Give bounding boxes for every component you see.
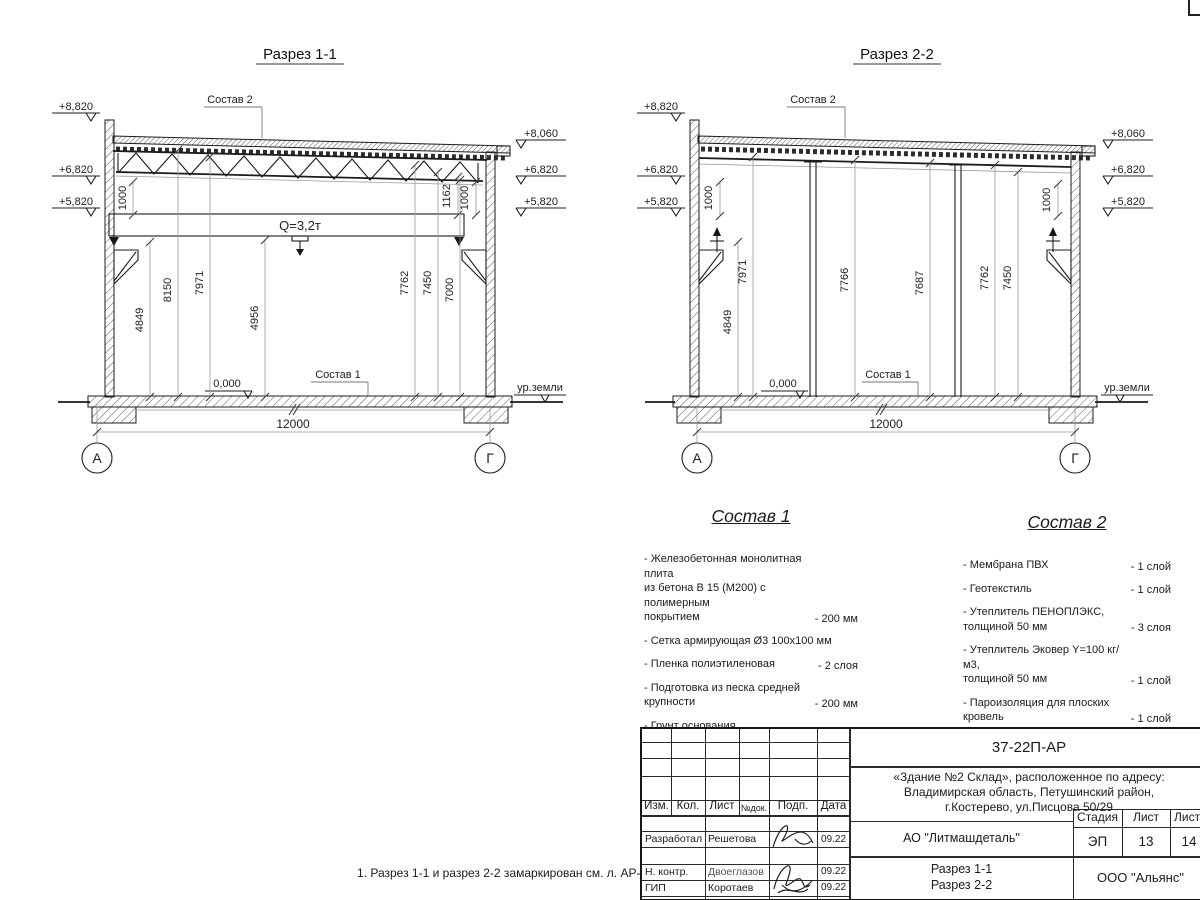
- list-item: - Подготовка из песка средней крупности …: [644, 681, 858, 710]
- signature-row-date: 09.22: [817, 866, 850, 877]
- elevation-label: +8,820: [59, 101, 93, 113]
- design-organization: ООО "Альянс": [1073, 856, 1200, 899]
- title-block: 37-22П-АР «Здание №2 Склад», расположенн…: [640, 727, 1200, 900]
- sheet-content-line2: Разрез 2-2: [850, 878, 1073, 893]
- zero-level-label: 0,000: [213, 378, 241, 390]
- signature-row-role: Разработал: [645, 833, 705, 845]
- sheet-content-line1: Разрез 1-1: [850, 862, 1073, 877]
- section-2-2: Разрез 2-2: [637, 46, 1153, 473]
- wall-left: [105, 120, 114, 397]
- wall-right: [1071, 152, 1080, 397]
- svg-text:7450: 7450: [422, 271, 434, 295]
- column-header-podp: Подп.: [769, 800, 817, 815]
- anchor-bolt-right: [1046, 227, 1060, 252]
- elevation-label: +5,820: [1111, 196, 1145, 208]
- section-1-title: Разрез 1-1: [263, 46, 337, 63]
- elevation-marks-left: +8,820 +6,820 +5,820: [637, 101, 685, 216]
- svg-text:8150: 8150: [162, 278, 174, 302]
- stage-header: Стадия: [1073, 810, 1122, 827]
- svg-text:4849: 4849: [134, 308, 146, 332]
- sostav-1-title: Состав 1: [644, 506, 858, 527]
- elevation-marks-right: +8,060 +6,820 +5,820: [516, 128, 566, 216]
- foundation-left: [677, 407, 721, 423]
- corbel-left: [114, 250, 138, 284]
- wall-right: [486, 152, 495, 397]
- dim-1000-left: 1000: [117, 178, 137, 219]
- corbel-left: [699, 250, 723, 284]
- span-dimension: 12000: [693, 405, 1079, 442]
- elevation-label: +6,820: [524, 164, 558, 176]
- list-item: - Геотекстиль - 1 слой: [963, 582, 1171, 597]
- stage-value: ЭП: [1073, 827, 1122, 856]
- svg-text:7762: 7762: [979, 266, 991, 290]
- svg-text:4956: 4956: [249, 306, 261, 330]
- elevation-label: +8,060: [524, 128, 558, 140]
- axis-letter: А: [92, 450, 102, 466]
- floor-slab: [88, 396, 512, 407]
- svg-text:7687: 7687: [914, 271, 926, 295]
- dim-1000-left: 1000: [703, 178, 724, 220]
- sostav-2-callout: Состав 2: [790, 94, 836, 106]
- project-address-line2: Владимирская область, Петушинский район,: [850, 785, 1200, 800]
- svg-text:12000: 12000: [869, 417, 903, 431]
- svg-text:7762: 7762: [399, 271, 411, 295]
- elevation-label: +5,820: [524, 196, 558, 208]
- list-item: - Пленка полиэтиленовая - 2 слоя: [644, 657, 858, 672]
- list-item: - Утеплитель Эковер Y=100 кг/м3, толщино…: [963, 643, 1171, 687]
- elevation-label: +5,820: [644, 196, 678, 208]
- signature-scribble: [770, 819, 816, 855]
- list-item: - Утеплитель ПЕНОПЛЭКС, толщиной 50 мм -…: [963, 605, 1171, 634]
- ground-level-label: ур.земли: [1104, 382, 1150, 394]
- crane-capacity-label: Q=3,2т: [279, 218, 321, 233]
- foundation-left: [92, 407, 136, 423]
- svg-text:1000: 1000: [459, 186, 471, 210]
- elevation-label: +6,820: [1111, 164, 1145, 176]
- sostav-2-callout: Состав 2: [207, 94, 253, 106]
- svg-text:7971: 7971: [194, 271, 206, 295]
- document-number: 37-22П-АР: [850, 733, 1200, 763]
- axis-letter: Г: [486, 450, 494, 466]
- wall-left: [690, 120, 699, 397]
- sheet-value: 13: [1122, 827, 1170, 856]
- elevation-label: +6,820: [644, 164, 678, 176]
- elevation-marks-right: +8,060 +6,820 +5,820: [1103, 128, 1153, 216]
- drawing-note: 1. Разрез 1-1 и разрез 2-2 замаркирован …: [357, 866, 657, 880]
- svg-text:1000: 1000: [703, 186, 715, 210]
- interior-posts: [804, 162, 967, 397]
- sheet-header: Лист: [1122, 810, 1170, 827]
- column-header-list: Лист: [705, 800, 739, 815]
- svg-text:1000: 1000: [1041, 188, 1053, 212]
- list-item: - Железобетонная монолитная плита из бет…: [644, 552, 858, 625]
- column-header-data: Дата: [817, 800, 850, 815]
- svg-text:12000: 12000: [276, 417, 310, 431]
- list-item: - Сетка армирующая Ø3 100х100 мм: [644, 634, 858, 649]
- svg-text:7766: 7766: [839, 268, 851, 292]
- zero-level-label: 0,000: [769, 378, 797, 390]
- vertical-dimensions: 4849 7971 7766 7687 7762 7450: [722, 153, 1022, 401]
- svg-text:7450: 7450: [1002, 266, 1014, 290]
- svg-text:1000: 1000: [117, 186, 129, 210]
- sostav-2-title: Состав 2: [963, 512, 1171, 533]
- sheets-value: 14: [1170, 827, 1200, 856]
- frame-corner: [1188, 0, 1200, 16]
- elevation-label: +5,820: [59, 196, 93, 208]
- sostav-1-callout: Состав 1: [315, 369, 361, 381]
- svg-text:7000: 7000: [444, 278, 456, 302]
- project-address-line1: «Здание №2 Склад», расположенное по адре…: [850, 770, 1200, 785]
- signature-row-name: Коротаев: [708, 882, 768, 894]
- sheets-header: Листов: [1174, 810, 1200, 827]
- sostav-1-block: Состав 1 - Железобетонная монолитная пли…: [644, 506, 858, 742]
- foundation-right: [464, 407, 508, 423]
- span-dimension: 12000: [93, 405, 494, 442]
- signature-row-name: Двоеглазов: [708, 866, 768, 878]
- dim-1000-right: 1000: [1041, 180, 1062, 220]
- signature-row-date: 09.22: [817, 882, 850, 893]
- ground-level-label: ур.земли: [517, 382, 563, 394]
- drawing-sheet: Разрез 1-1 Q=3,2т: [0, 0, 1200, 900]
- corbel-right: [462, 250, 486, 284]
- elevation-label: +8,060: [1111, 128, 1145, 140]
- section-1-1: Разрез 1-1 Q=3,2т: [52, 46, 566, 473]
- foundation-right: [1049, 407, 1093, 423]
- corbel-right: [1047, 250, 1071, 284]
- roof-truss: [113, 151, 487, 185]
- axis-letter: Г: [1071, 450, 1079, 466]
- elevation-label: +6,820: [59, 164, 93, 176]
- column-header-ndok: №док.: [739, 803, 769, 816]
- elevation-label: +8,820: [644, 101, 678, 113]
- section-2-title: Разрез 2-2: [860, 46, 934, 63]
- column-header-izm: Изм.: [642, 800, 671, 815]
- list-item: - Мембрана ПВХ - 1 слой: [963, 558, 1171, 573]
- signature-row-role: ГИП: [645, 882, 705, 894]
- anchor-bolt-left: [710, 227, 724, 252]
- signature-row-role: Н. контр.: [645, 866, 705, 878]
- elevation-marks-left: +8,820 +6,820 +5,820: [52, 101, 100, 216]
- list-item: - Пароизоляция для плоских кровель - 1 с…: [963, 696, 1171, 725]
- customer-company: АО "Литмашдеталь": [850, 821, 1073, 856]
- crane-trolley: [292, 236, 308, 241]
- svg-text:7971: 7971: [737, 260, 749, 284]
- signature-row-name: Решетова: [708, 833, 768, 845]
- column-header-kol: Кол.: [671, 800, 705, 815]
- sections-drawing: Разрез 1-1 Q=3,2т: [0, 0, 1200, 520]
- signature-scribble: [770, 855, 816, 897]
- axis-letter: А: [692, 450, 702, 466]
- signature-row-date: 09.22: [817, 834, 850, 845]
- svg-text:1162: 1162: [441, 184, 453, 208]
- sostav-1-callout: Состав 1: [865, 369, 911, 381]
- svg-text:4849: 4849: [722, 310, 734, 334]
- vertical-dimensions: 4849 8150 7971 4956 7762 7450 7000: [134, 146, 464, 401]
